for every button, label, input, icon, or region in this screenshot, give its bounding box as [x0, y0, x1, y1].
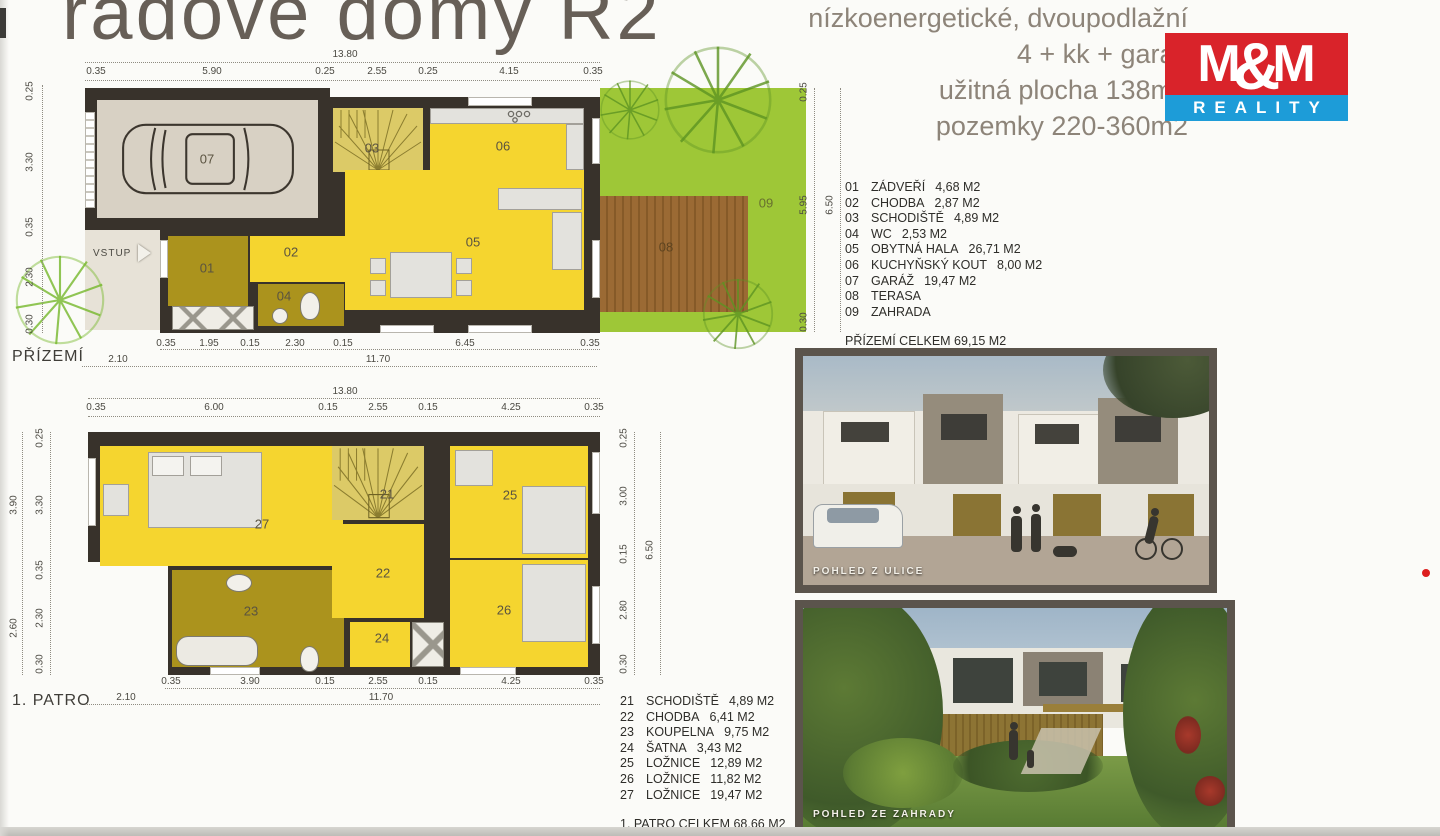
chair [370, 280, 386, 296]
dim-label: 0.35 [35, 560, 46, 579]
legend-item: 27LOŽNICE19,47 M2 [620, 788, 786, 804]
window [1039, 662, 1087, 696]
room-number: 09 [759, 196, 773, 211]
scan-edge [0, 0, 9, 836]
dim-label: 5.95 [799, 195, 810, 214]
footprint-cutout [88, 562, 168, 675]
person-head [1032, 504, 1040, 512]
dim-label: 2.55 [368, 402, 387, 413]
window [468, 97, 532, 106]
window [460, 667, 516, 675]
dim-line [50, 432, 51, 675]
subtitle-line: užitná plocha 138m2 [808, 72, 1188, 108]
wardrobe-hatch [172, 306, 254, 330]
dim-label: 6.45 [455, 338, 474, 349]
room-number: 26 [497, 603, 511, 618]
dim-label: 0.35 [161, 676, 180, 687]
pillow [190, 456, 222, 476]
dim-label: 0.15 [619, 544, 630, 563]
dim-line [165, 688, 600, 689]
window [210, 667, 260, 675]
room-number: 08 [659, 240, 673, 255]
toilet-icon [300, 292, 320, 320]
floor-label-first: 1. PATRO [12, 692, 91, 710]
tree-icon [660, 42, 776, 158]
street-render-photo: POHLED Z ULICE [795, 348, 1217, 593]
dim-label: 0.35 [156, 338, 175, 349]
red-dot-mark [1422, 569, 1430, 577]
dim-label: 0.15 [333, 338, 352, 349]
room-number: 02 [284, 245, 298, 260]
dim-label: 2.60 [9, 618, 20, 637]
dim-line [88, 416, 600, 417]
dim-label: 4.25 [501, 402, 520, 413]
room-number: 25 [503, 488, 517, 503]
room-number: 06 [496, 139, 510, 154]
dim-label: 0.30 [799, 312, 810, 331]
cyclist-head [1151, 508, 1159, 516]
dim-label: 1.95 [199, 338, 218, 349]
dim-label: 2.55 [367, 66, 386, 77]
bed [522, 486, 586, 554]
entrance-arrow-icon [138, 244, 151, 262]
dim-line [42, 85, 43, 333]
mm-reality-logo: M & M REALITY [1165, 33, 1348, 121]
red-flowers [1175, 716, 1201, 754]
logo-mm: M & M [1165, 33, 1348, 95]
wardrobe-hatch [412, 622, 444, 667]
legend-item: 02CHODBA2,87 M2 [845, 196, 1042, 212]
person-silhouette [1031, 514, 1041, 552]
room-number: 23 [244, 604, 258, 619]
legend-item: 08TERASA [845, 289, 1042, 305]
room-number: 24 [375, 631, 389, 646]
room-number: 03 [365, 141, 379, 156]
car-windows [827, 508, 879, 523]
dim-line [160, 349, 600, 350]
dim-line [22, 432, 23, 675]
dim-label: 0.25 [35, 428, 46, 447]
room-number: 21 [380, 487, 394, 502]
room-number: 05 [466, 235, 480, 250]
chair [456, 258, 472, 274]
page-title: řadové domy R2 [62, 0, 662, 57]
dim-line [85, 62, 600, 63]
window-band [841, 422, 889, 442]
subtitle-line: pozemky 220-360m2 [808, 108, 1188, 144]
room-stairs-upper [332, 446, 424, 520]
window-band [941, 414, 987, 440]
terrace-door [592, 240, 600, 298]
photo-caption: POHLED Z ULICE [813, 566, 924, 577]
dim-label: 2.30 [35, 608, 46, 627]
room-number: 01 [200, 261, 214, 276]
wardrobe [455, 450, 493, 486]
person-head [1013, 506, 1021, 514]
dim-label: 0.35 [583, 66, 602, 77]
stone-volume [923, 394, 1003, 486]
legend-item: 25LOŽNICE12,89 M2 [620, 756, 786, 772]
dim-label: 0.25 [25, 81, 36, 100]
legend-item: 24ŠATNA3,43 M2 [620, 741, 786, 757]
dim-line [634, 432, 635, 675]
dim-label: 0.35 [584, 402, 603, 413]
legend-item: 06KUCHYŇSKÝ KOUT8,00 M2 [845, 258, 1042, 274]
sofa [552, 212, 582, 270]
person-head [1010, 722, 1018, 730]
dim-label: 3.30 [35, 495, 46, 514]
dim-label: 13.80 [332, 386, 357, 397]
garage-door [85, 112, 95, 208]
bed [522, 564, 586, 642]
red-flowers [1195, 776, 1225, 806]
dim-label: 0.15 [418, 676, 437, 687]
legend-item: 07GARÁŽ19,47 M2 [845, 274, 1042, 290]
dim-line [82, 366, 597, 367]
dim-label: 11.70 [366, 354, 390, 365]
garage-door [1053, 494, 1101, 538]
dim-label: 2.10 [108, 354, 127, 365]
garden-render-photo: POHLED ZE ZAHRADY [795, 600, 1235, 836]
dim-label: 0.35 [580, 338, 599, 349]
dim-label: 3.90 [240, 676, 259, 687]
dim-label: 0.25 [619, 428, 630, 447]
window [468, 325, 532, 333]
dog-silhouette [1053, 546, 1077, 557]
dim-label: 0.15 [318, 402, 337, 413]
dim-label: 0.35 [25, 217, 36, 236]
scan-mark [0, 8, 6, 38]
dim-label: 0.15 [418, 402, 437, 413]
dim-label: 2.80 [619, 600, 630, 619]
dim-label: 0.25 [315, 66, 334, 77]
legend-item: 01ZÁDVEŘÍ4,68 M2 [845, 180, 1042, 196]
dim-label: 3.30 [25, 152, 36, 171]
legend-item: 23KOUPELNA9,75 M2 [620, 725, 786, 741]
window [953, 658, 1013, 703]
window-band [1035, 424, 1079, 444]
person-silhouette [1009, 730, 1018, 760]
scanned-listing-page: řadové domy R2 nízkoenergetické, dvoupod… [0, 0, 1440, 836]
dim-label: 3.90 [9, 495, 20, 514]
dining-table [390, 252, 452, 298]
dim-label: 0.25 [799, 82, 810, 101]
chair [456, 280, 472, 296]
washbasin-icon [272, 308, 288, 324]
room-number: 04 [277, 289, 291, 304]
window [592, 118, 600, 164]
dim-label: 2.30 [285, 338, 304, 349]
entry-door [160, 240, 168, 278]
legend-item: 05OBYTNÁ HALA26,71 M2 [845, 242, 1042, 258]
tree-icon [598, 78, 662, 142]
bathtub-icon [176, 636, 258, 666]
room-number: 07 [200, 152, 214, 167]
dim-line [660, 432, 661, 675]
dim-line [814, 88, 815, 332]
child-silhouette [1027, 750, 1034, 768]
floor-label-ground: PŘÍZEMÍ [12, 348, 84, 366]
legend-item: 03SCHODIŠTĚ4,89 M2 [845, 211, 1042, 227]
window-band [1115, 416, 1161, 442]
dim-label: 4.15 [499, 66, 518, 77]
garage-door [953, 494, 1001, 538]
dim-label: 0.30 [619, 654, 630, 673]
dim-label: 0.15 [240, 338, 259, 349]
legend-item: 09ZAHRADA [845, 305, 1042, 321]
dim-label: 0.35 [86, 402, 105, 413]
dim-label: 0.30 [35, 654, 46, 673]
sofa [498, 188, 582, 210]
dim-line [85, 80, 600, 81]
washbasin-icon [226, 574, 252, 592]
window [592, 586, 600, 644]
dim-label: 2.30 [25, 267, 36, 286]
legend-item: 22CHODBA6,41 M2 [620, 710, 786, 726]
dim-label: 0.35 [86, 66, 105, 77]
tree-icon [700, 276, 776, 352]
dim-label: 6.00 [204, 402, 223, 413]
dim-label: 2.55 [368, 676, 387, 687]
stove-icon [505, 109, 533, 123]
room-number: 22 [376, 566, 390, 581]
dim-label: 6.50 [825, 195, 836, 214]
dim-label: 2.10 [116, 692, 135, 703]
window [88, 458, 96, 526]
pillow [152, 456, 184, 476]
subtitle-block: nízkoenergetické, dvoupodlažní 4 + kk + … [808, 0, 1188, 144]
window [592, 452, 600, 514]
legend-item: 26LOŽNICE11,82 M2 [620, 772, 786, 788]
subtitle-line: nízkoenergetické, dvoupodlažní [808, 0, 1188, 36]
dim-label: 0.15 [315, 676, 334, 687]
ground-floor-legend: 01ZÁDVEŘÍ4,68 M2 02CHODBA2,87 M2 03SCHOD… [845, 180, 1042, 350]
dim-label: 3.00 [619, 486, 630, 505]
dim-label: 4.25 [501, 676, 520, 687]
bush [843, 738, 963, 808]
dim-line [87, 704, 600, 705]
person-silhouette [1011, 516, 1022, 552]
subtitle-line: 4 + kk + garáž [808, 36, 1188, 72]
window [380, 325, 434, 333]
dim-label: 5.90 [202, 66, 221, 77]
dim-line [88, 398, 600, 399]
toilet-icon [300, 646, 319, 672]
dim-line [840, 88, 841, 332]
chair [370, 258, 386, 274]
kitchen-sink-unit [566, 124, 584, 170]
room-number: 27 [255, 517, 269, 532]
dim-label: 0.30 [25, 314, 36, 333]
dim-label: 6.50 [645, 540, 656, 559]
scan-shadow [0, 827, 1440, 836]
bedside-shelf [103, 484, 129, 516]
dim-label: 0.25 [418, 66, 437, 77]
legend-item: 21SCHODIŠTĚ4,89 M2 [620, 694, 786, 710]
bicycle-wheel [1161, 538, 1183, 560]
dim-label: 0.35 [584, 676, 603, 687]
logo-ampersand: & [1233, 33, 1281, 99]
dim-label: 11.70 [369, 692, 393, 703]
dim-label: 13.80 [332, 49, 357, 60]
legend-item: 04WC2,53 M2 [845, 227, 1042, 243]
first-floor-legend: 21SCHODIŠTĚ4,89 M2 22CHODBA6,41 M2 23KOU… [620, 694, 786, 833]
photo-caption: POHLED ZE ZAHRADY [813, 809, 956, 820]
